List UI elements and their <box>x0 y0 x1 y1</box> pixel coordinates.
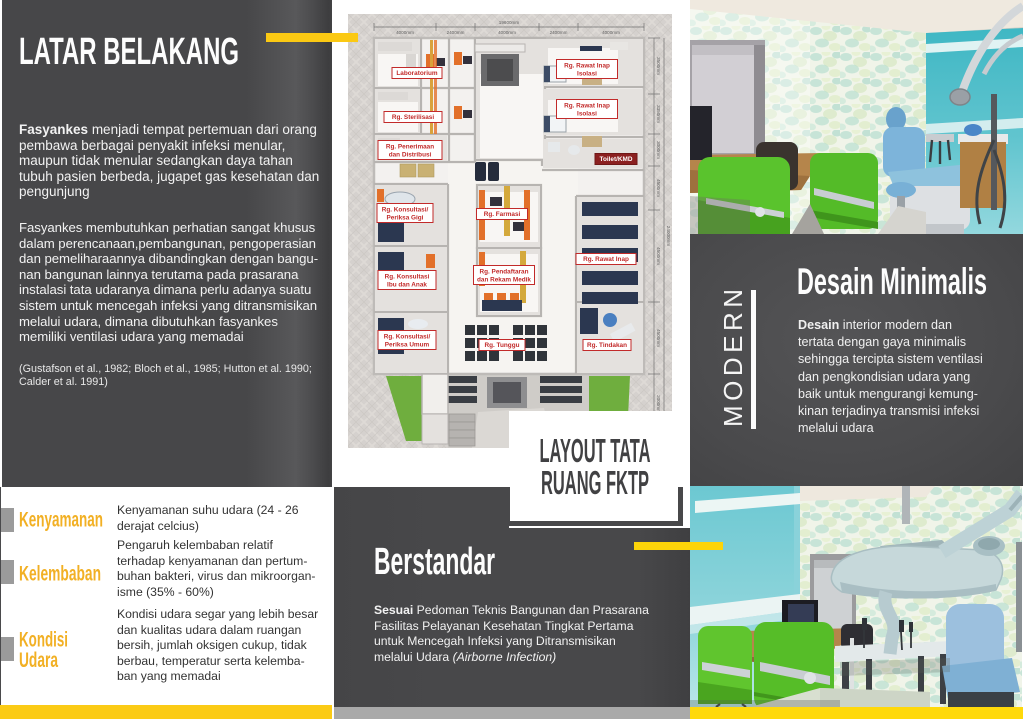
svg-text:Rg. Sterilisasi: Rg. Sterilisasi <box>392 114 434 121</box>
svg-text:Rg. Rawat Inap: Rg. Rawat Inap <box>564 103 610 110</box>
svg-text:Isolasi: Isolasi <box>577 111 597 118</box>
svg-text:3000mm: 3000mm <box>656 141 661 159</box>
svg-text:Periksa Umum: Periksa Umum <box>385 342 430 349</box>
svg-text:Rg. Konsultasi/: Rg. Konsultasi/ <box>382 207 429 214</box>
svg-text:Rg. Rawat Inap: Rg. Rawat Inap <box>564 63 610 70</box>
svg-text:Rg. Tunggu: Rg. Tunggu <box>484 342 519 349</box>
svg-text:Rg. Pendaftaran: Rg. Pendaftaran <box>479 269 528 276</box>
svg-text:4000mm: 4000mm <box>396 30 414 35</box>
svg-text:Rg. Konsultasi: Rg. Konsultasi <box>385 274 430 281</box>
svg-text:2400mm: 2400mm <box>447 30 465 35</box>
svg-text:Berstandar: Berstandar <box>374 541 495 583</box>
svg-text:4500mm: 4500mm <box>656 329 661 347</box>
svg-text:Rg. Konsultasi/: Rg. Konsultasi/ <box>384 334 431 341</box>
svg-text:RUANG FKTP: RUANG FKTP <box>541 464 649 501</box>
svg-text:LATAR BELAKANG: LATAR BELAKANG <box>19 31 239 73</box>
svg-text:Rg. Penerimaan: Rg. Penerimaan <box>386 144 434 151</box>
svg-text:Laboratorium: Laboratorium <box>396 70 438 77</box>
svg-text:Rg. Rawat Inap: Rg. Rawat Inap <box>583 256 629 263</box>
svg-text:Kelembaban: Kelembaban <box>19 563 101 586</box>
svg-text:Isolasi: Isolasi <box>577 71 597 78</box>
svg-text:4000mm: 4000mm <box>498 30 516 35</box>
svg-text:dan Distribusi: dan Distribusi <box>389 152 432 159</box>
svg-text:24000mm: 24000mm <box>666 226 671 247</box>
svg-text:Rg. Farmasi: Rg. Farmasi <box>484 211 521 218</box>
svg-text:dan Rekam Medik: dan Rekam Medik <box>477 277 531 284</box>
svg-text:Kenyamanan: Kenyamanan <box>19 509 103 532</box>
svg-text:4000mm: 4000mm <box>602 30 620 35</box>
svg-text:Udara: Udara <box>19 649 58 672</box>
svg-text:3350mm: 3350mm <box>656 105 661 123</box>
svg-text:Desain Minimalis: Desain Minimalis <box>797 261 987 302</box>
svg-text:Toilet/KMD: Toilet/KMD <box>600 156 633 163</box>
svg-text:3500mm: 3500mm <box>656 57 661 75</box>
svg-text:Periksa Gigi: Periksa Gigi <box>387 215 424 222</box>
svg-text:Rg. Tindakan: Rg. Tindakan <box>587 342 627 349</box>
svg-text:2400mm: 2400mm <box>550 30 568 35</box>
svg-text:Ibu dan Anak: Ibu dan Anak <box>387 282 427 289</box>
svg-text:19600mm: 19600mm <box>499 20 520 25</box>
svg-text:4500mm: 4500mm <box>656 179 661 197</box>
svg-text:4500mm: 4500mm <box>656 247 661 265</box>
